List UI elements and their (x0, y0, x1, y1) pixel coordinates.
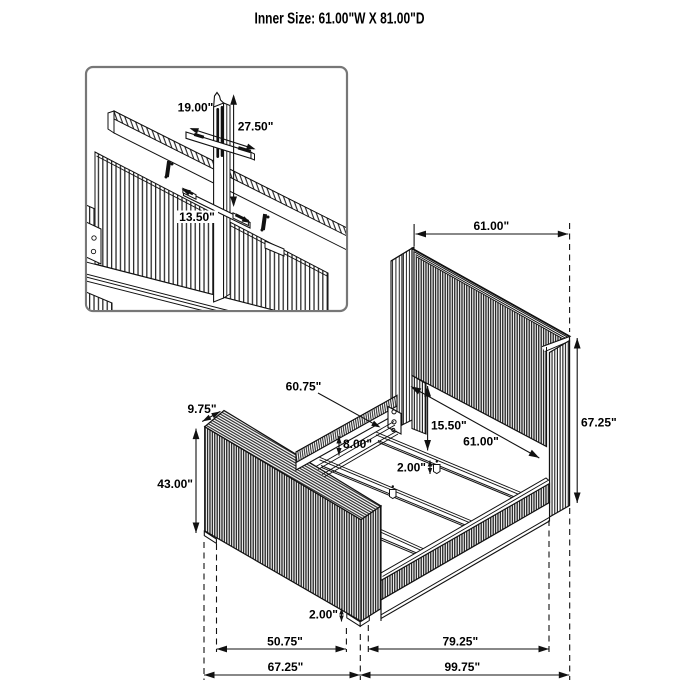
svg-text:15.50": 15.50" (431, 419, 467, 433)
svg-text:43.00": 43.00" (157, 477, 193, 491)
svg-text:67.25": 67.25" (581, 416, 617, 430)
svg-text:50.75": 50.75" (267, 635, 303, 649)
svg-text:67.25": 67.25" (268, 660, 304, 674)
svg-text:8.00": 8.00" (343, 437, 372, 451)
svg-text:61.00": 61.00" (473, 219, 509, 233)
svg-text:2.00": 2.00" (397, 461, 426, 475)
svg-text:61.00": 61.00" (463, 435, 499, 449)
svg-text:27.50": 27.50" (238, 120, 274, 134)
svg-text:79.25": 79.25" (442, 635, 478, 649)
svg-text:13.50": 13.50" (179, 210, 215, 224)
svg-text:9.75": 9.75" (187, 402, 216, 416)
svg-text:19.00": 19.00" (178, 101, 214, 115)
svg-text:99.75": 99.75" (444, 660, 480, 674)
svg-text:Inner Size: 61.00"W X 81.00"D: Inner Size: 61.00"W X 81.00"D (255, 11, 425, 28)
svg-text:60.75": 60.75" (286, 380, 322, 394)
svg-text:2.00": 2.00" (309, 608, 338, 622)
